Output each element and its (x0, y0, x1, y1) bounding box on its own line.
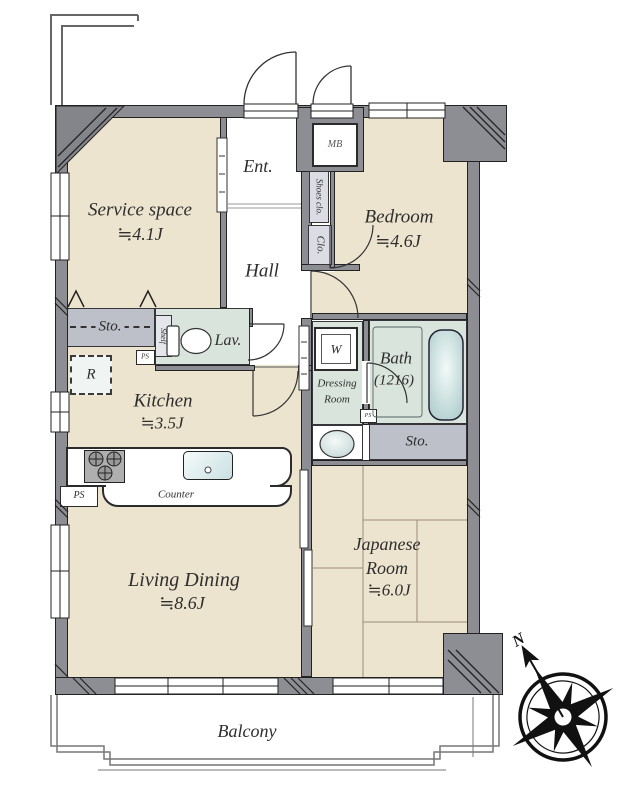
window-left-kitchen (51, 392, 69, 432)
plan-linework: N (0, 0, 626, 800)
label-kitchen: Kitchen (133, 392, 192, 411)
label-meter-box: MB (328, 140, 342, 150)
label-bath: Bath (380, 350, 412, 367)
label-balcony: Balcony (218, 722, 277, 740)
sliding-doors-living-japanese (300, 470, 312, 626)
label-bedroom-size: ≒4.6J (375, 232, 421, 250)
label-washing-machine: W (331, 343, 342, 356)
compass-rose: N (464, 604, 626, 796)
bathtub (429, 330, 463, 420)
label-living-dining-size: ≒8.6J (159, 594, 205, 612)
stove-burners (89, 452, 121, 480)
railing-top-left (51, 15, 138, 105)
label-bedroom: Bedroom (365, 208, 434, 227)
label-dressing-room-1: Dressing (317, 379, 356, 390)
wall-hatch-marks (55, 278, 480, 694)
vanity-sink (320, 431, 354, 458)
label-dressing-room-2: Room (324, 395, 350, 406)
floor-plan: N Ent. Hall Service space ≒4.1J Bedroom … (0, 0, 626, 800)
hanger-hooks (68, 291, 156, 307)
corner-hatch-bottom-right (448, 650, 499, 693)
corner-hatch-top-left (56, 106, 124, 174)
sliding-door-dressing (299, 326, 309, 390)
label-counter: Counter (158, 490, 194, 501)
window-left-service (51, 173, 69, 260)
label-entrance: Ent. (243, 157, 273, 175)
label-lavatory: Lav. (215, 333, 242, 349)
entrance-step-line (227, 204, 301, 208)
toilet (167, 326, 211, 356)
label-pipe-space-lav: PS (141, 354, 149, 361)
label-shelf: Shelf (159, 328, 167, 344)
label-pipe-space-kitchen: PS (73, 491, 84, 501)
window-balcony-left (115, 678, 278, 694)
label-service-space-size: ≒4.1J (117, 225, 163, 243)
door-lavatory (248, 324, 284, 360)
door-entrance-second (313, 66, 351, 104)
sink-drain (205, 467, 211, 473)
sliding-door-service-closet (217, 138, 227, 212)
label-japanese-room-size: ≒6.0J (367, 582, 410, 599)
label-closet: Clo. (315, 236, 326, 255)
entrance-door-sills (244, 104, 353, 118)
label-bath-size: (1216) (374, 374, 414, 389)
label-pipe-space-bath: PS (365, 413, 372, 419)
door-entrance-main (244, 52, 296, 104)
door-kitchen (253, 371, 298, 416)
window-left-living (51, 525, 69, 618)
corner-hatch-top-right (463, 107, 505, 149)
label-living-dining: Living Dining (128, 570, 240, 590)
door-closet (330, 225, 373, 268)
compass-north-label: N (509, 629, 530, 651)
label-storage-hall: Sto. (96, 320, 125, 335)
label-japanese-room-2: Room (366, 559, 408, 577)
label-kitchen-size: ≒3.5J (140, 415, 183, 432)
door-bedroom (311, 271, 358, 318)
window-balcony-right (333, 678, 443, 694)
label-service-space: Service space (88, 201, 192, 220)
label-hall: Hall (245, 262, 279, 281)
window-bedroom-top (369, 103, 445, 118)
label-japanese-room-1: Japanese (354, 535, 421, 553)
label-refrigerator: R (86, 368, 95, 383)
label-shoes-closet: Shoes clo. (315, 179, 324, 216)
label-storage-japanese: Sto. (406, 435, 429, 450)
